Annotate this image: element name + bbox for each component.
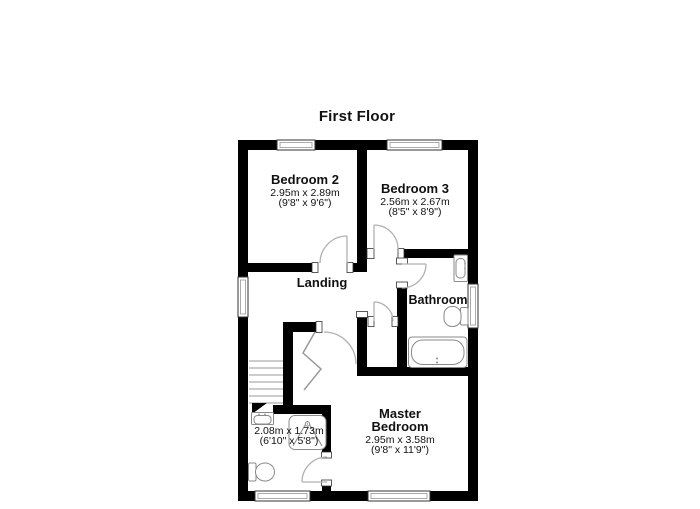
master-name-line2: Bedroom [365,420,434,433]
bedroom2-name: Bedroom 2 [270,173,339,186]
jamb [367,249,374,259]
jamb [398,249,404,259]
room-label-bedroom2: Bedroom 2 2.95m x 2.89m (9'8" x 9'6") [270,173,339,208]
wall-passage-left [283,322,293,407]
jamb [322,480,332,486]
room-label-bedroom3: Bedroom 3 2.56m x 2.67m (8'5" x 8'9") [380,182,449,217]
bedroom2-dim-imperial: (9'8" x 9'6") [270,198,339,208]
landing-name: Landing [297,276,348,289]
master-dim-imperial: (9'8" x 11'9") [365,445,434,455]
room-label-ensuite: 2.08m x 1.73m (6'10" x 5'8") [254,426,323,446]
jamb [397,258,408,264]
wall-passage-top [283,322,316,332]
bedroom3-name: Bedroom 3 [380,182,449,195]
door-master-passage [324,332,356,364]
window-bedroom2-top [277,140,315,150]
door-bedroom3 [374,225,398,249]
door-ensuite [302,457,327,482]
ensuite-dim-imperial: (6'10" x 5'8") [254,436,323,446]
room-label-master-bedroom: Master Bedroom 2.95m x 3.58m (9'8" x 11'… [365,407,434,455]
door-bedroom2 [320,236,347,263]
wall-bathroom-bottom [357,367,468,376]
jamb [368,317,374,327]
window-landing-left [238,277,248,317]
jamb [357,312,368,318]
jamb [312,263,318,273]
wall-bedroom2-bottom-stub [353,263,357,272]
room-label-bathroom: Bathroom [408,294,467,307]
window-bedroom3-top [387,140,442,150]
wall-bathroom-left [397,288,407,376]
room-label-landing: Landing [297,276,348,291]
bathroom-sink [454,255,468,282]
window-ensuite-bottom [255,491,310,501]
window-master-bottom [368,491,430,501]
wall-outer-left [238,140,248,501]
bathroom-toilet [444,307,468,327]
floor-plan-drawing [0,0,700,509]
wall-ensuite-right-stub [322,486,331,492]
page-title: First Floor [319,109,395,124]
wall-bedroom-divider [357,150,367,272]
bathroom-name: Bathroom [408,294,467,307]
wall-bedroom2-bottom [248,263,312,272]
jamb [347,263,353,273]
door-cupboard [374,302,393,321]
window-bathroom-right [468,284,478,328]
jamb [316,322,322,333]
ensuite-toilet [249,463,275,481]
floorplan-page: First Floor Bedroom 2 2.95m x 2.89m (9'8… [0,0,700,509]
bedroom3-dim-imperial: (8'5" x 8'9") [380,207,449,217]
stair-break-line [303,332,321,390]
bathtub [409,337,468,368]
ensuite-sink [252,413,274,425]
wall-ensuite-top [273,405,331,414]
wall-cupboard-left [357,317,367,376]
